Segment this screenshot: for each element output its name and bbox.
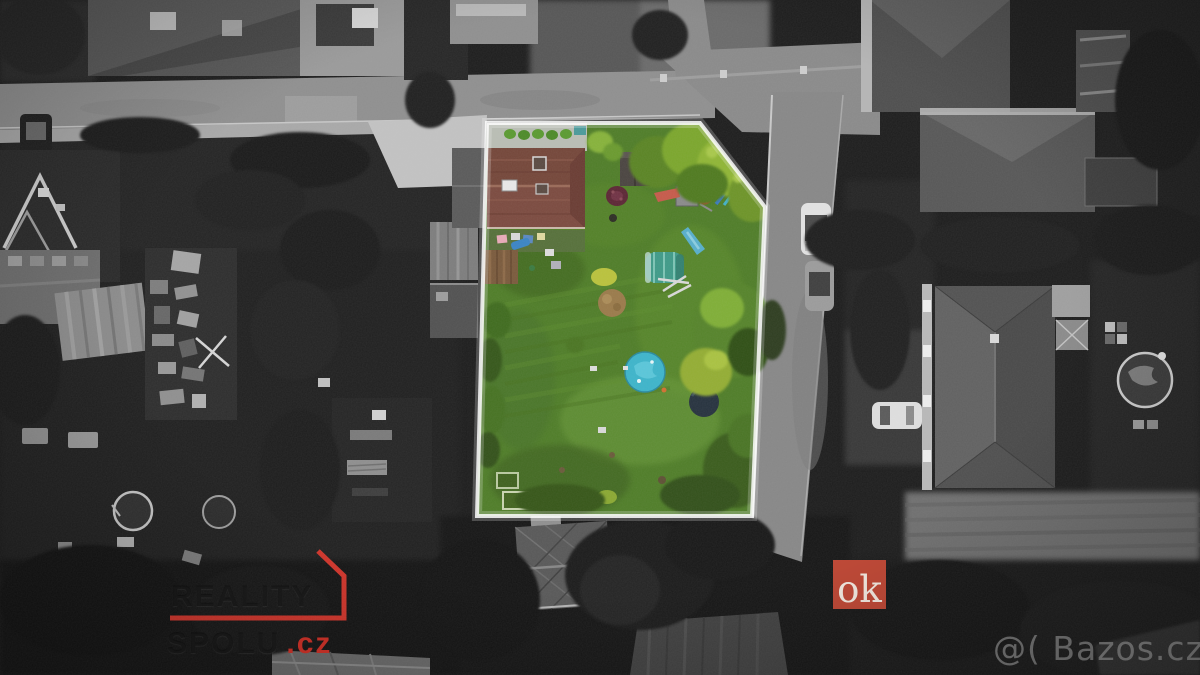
grain-overlay [0,0,1200,675]
ok-badge: ok [833,560,886,609]
aerial-photo-canvas [0,0,1200,675]
brand-watermark-line1: REALITY [171,580,313,614]
bazos-watermark: @( Bazos.cz [993,629,1200,668]
brand-watermark-tld: .cz [286,627,332,660]
brand-watermark-name: SPOLU [167,627,280,660]
ok-badge-label: ok [837,571,882,608]
brand-watermark-line2: SPOLU.cz [167,627,332,661]
aerial-photo: REALITY SPOLU.cz ok @( Bazos.cz [0,0,1200,675]
